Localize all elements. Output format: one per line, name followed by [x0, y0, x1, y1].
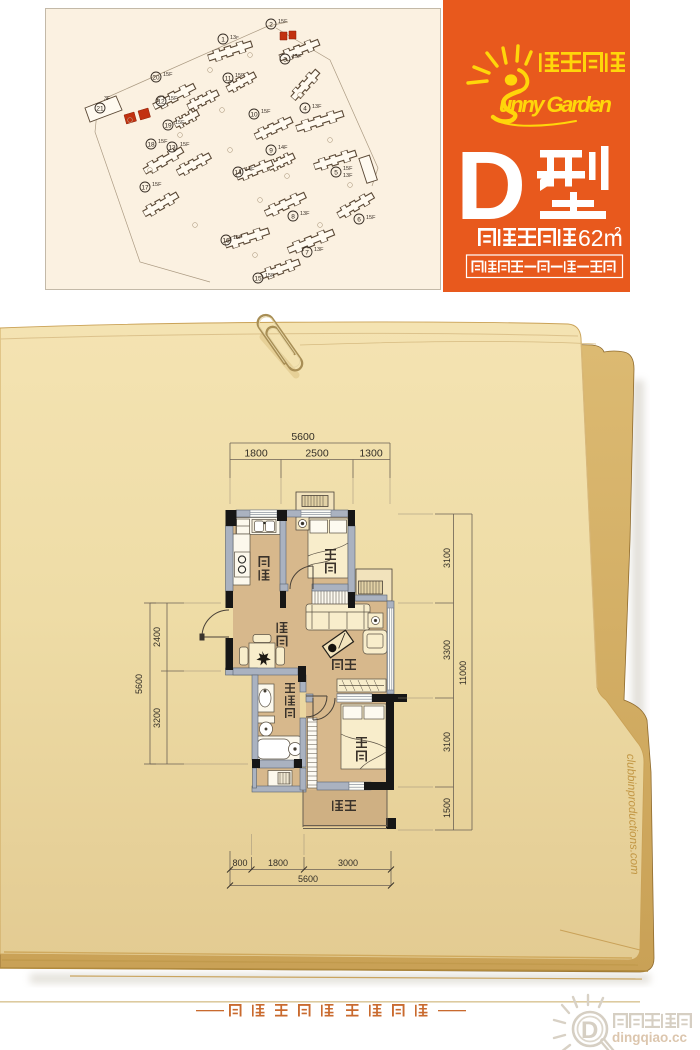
- svg-text:14F: 14F: [245, 167, 255, 173]
- svg-text:1800: 1800: [268, 858, 288, 868]
- svg-text:14: 14: [234, 170, 242, 177]
- svg-text:2: 2: [614, 224, 621, 239]
- svg-text:13F: 13F: [314, 247, 324, 253]
- svg-text:4: 4: [303, 106, 307, 113]
- svg-text:21: 21: [96, 106, 104, 113]
- svg-text:11: 11: [225, 76, 232, 83]
- svg-text:3F: 3F: [104, 96, 111, 102]
- svg-text:15F: 15F: [233, 235, 243, 241]
- svg-text:D: D: [581, 1017, 598, 1044]
- svg-text:17: 17: [141, 185, 149, 192]
- svg-text:1: 1: [221, 37, 225, 44]
- svg-text:3100: 3100: [442, 732, 452, 752]
- svg-text:1500: 1500: [442, 798, 452, 818]
- svg-text:15F: 15F: [235, 73, 245, 79]
- svg-text:3: 3: [283, 57, 287, 64]
- svg-text:15F: 15F: [158, 139, 168, 145]
- svg-text:13F: 13F: [312, 104, 322, 110]
- svg-text:15F: 15F: [152, 182, 162, 188]
- svg-text:1800: 1800: [244, 448, 268, 460]
- svg-text:13F: 13F: [343, 173, 353, 179]
- svg-text:2400: 2400: [152, 627, 162, 647]
- svg-text:3300: 3300: [442, 640, 452, 660]
- svg-text:19: 19: [164, 123, 172, 130]
- svg-text:18: 18: [147, 142, 155, 149]
- svg-text:15F: 15F: [175, 120, 185, 126]
- svg-text:13F: 13F: [300, 211, 310, 217]
- svg-text:15F: 15F: [163, 72, 173, 78]
- svg-text:15F: 15F: [180, 142, 190, 148]
- svg-text:3200: 3200: [152, 708, 162, 728]
- svg-text:9: 9: [269, 148, 273, 155]
- svg-text:dingqiao.cc: dingqiao.cc: [612, 1030, 688, 1045]
- svg-text:15F: 15F: [265, 273, 275, 279]
- svg-text:1300: 1300: [359, 448, 383, 460]
- svg-text:2500: 2500: [305, 448, 329, 460]
- svg-text:5600: 5600: [134, 674, 144, 694]
- svg-text:12: 12: [157, 99, 165, 106]
- svg-text:8: 8: [291, 214, 295, 221]
- svg-text:7: 7: [305, 250, 309, 257]
- svg-text:15: 15: [254, 276, 262, 283]
- svg-text:11000: 11000: [458, 661, 468, 685]
- svg-text:5600: 5600: [298, 874, 318, 884]
- svg-text:5600: 5600: [291, 431, 315, 443]
- svg-text:5: 5: [334, 170, 338, 177]
- svg-text:15F: 15F: [278, 19, 288, 25]
- svg-text:20: 20: [152, 75, 160, 82]
- svg-text:800: 800: [232, 858, 247, 868]
- svg-text:15F: 15F: [168, 96, 178, 102]
- svg-text:2: 2: [269, 22, 273, 29]
- svg-text:3000: 3000: [338, 858, 358, 868]
- svg-text:3100: 3100: [442, 548, 452, 568]
- svg-text:13: 13: [168, 145, 176, 152]
- svg-text:6: 6: [357, 217, 361, 224]
- svg-text:unny Garden: unny Garden: [499, 92, 612, 117]
- svg-text:15F: 15F: [261, 109, 271, 115]
- svg-text:D: D: [456, 131, 526, 240]
- svg-text:16: 16: [222, 238, 230, 245]
- svg-text:10: 10: [250, 112, 258, 119]
- svg-text:15F: 15F: [343, 166, 353, 172]
- svg-text:14F: 14F: [278, 145, 288, 151]
- svg-text:15F: 15F: [366, 215, 376, 221]
- svg-text:15F: 15F: [292, 54, 302, 60]
